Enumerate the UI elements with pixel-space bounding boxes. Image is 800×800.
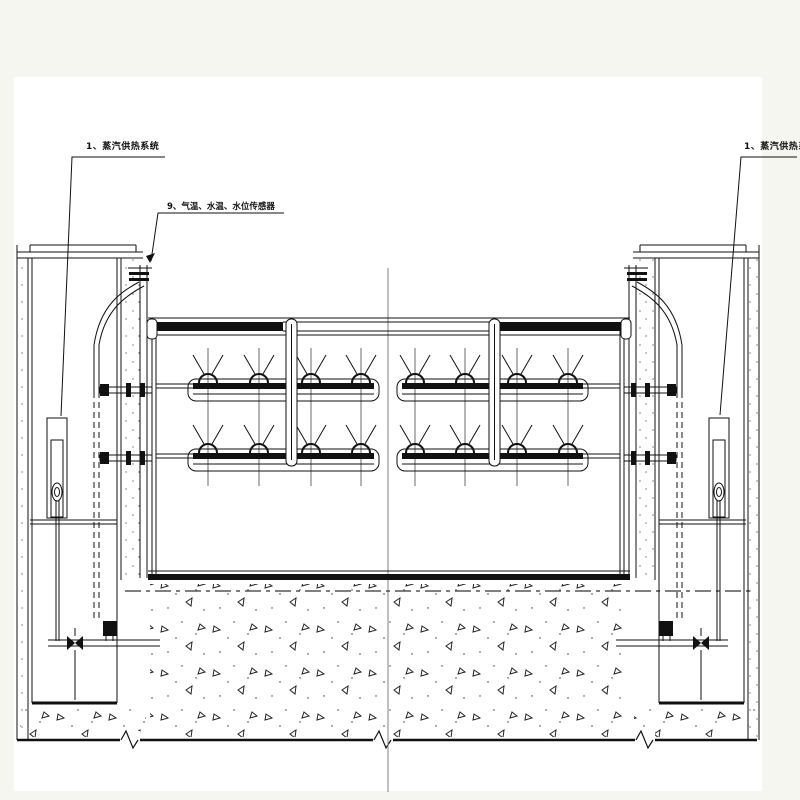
engineering-drawing-canvas: 1、蒸汽供热系统 9、气温、水温、水位传感器 1、蒸汽供热系统: [0, 0, 800, 800]
label-steam-supply-system-left: 1、蒸汽供热系统: [86, 139, 159, 152]
label-temperature-water-level-sensors: 9、气温、水温、水位传感器: [167, 200, 275, 212]
left-bottom-mechanism: [48, 621, 160, 700]
concrete-base: [17, 584, 757, 749]
left-tower: [17, 245, 160, 740]
right-tower: [616, 245, 759, 740]
gate-heating-section-drawing: [0, 0, 800, 800]
right-bottom-mechanism: [616, 621, 728, 700]
right-cylinder: [709, 418, 729, 641]
left-cylinder: [47, 418, 67, 641]
leader-lines: [61, 157, 797, 416]
label-steam-supply-system-right: 1、蒸汽供热系统: [744, 139, 800, 152]
